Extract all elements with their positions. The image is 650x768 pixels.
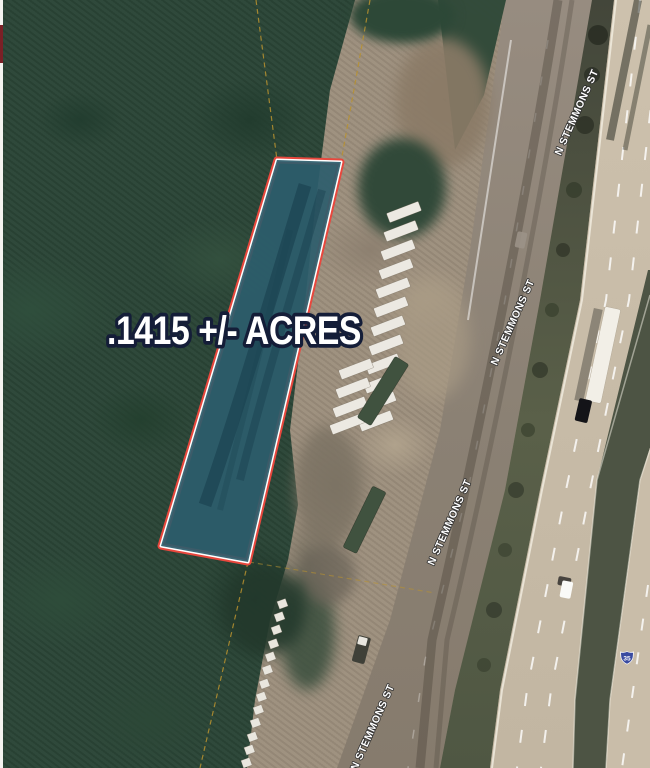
road-wear-streaks	[420, 0, 572, 768]
parcel-boundary	[161, 160, 341, 562]
map-overlay: N STEMMONS ST N STEMMONS ST N STEMMONS S…	[0, 0, 650, 768]
vehicles	[352, 231, 621, 664]
shield-route-number: 35	[623, 656, 631, 663]
street-label: N STEMMONS ST	[349, 682, 398, 768]
trailer-row-bottom	[241, 599, 288, 768]
aerial-map: N STEMMONS ST N STEMMONS ST N STEMMONS S…	[0, 0, 650, 768]
semi-truck-cab	[574, 398, 592, 423]
left-edge-border	[0, 0, 3, 768]
acreage-label: .1415 +/- ACRES	[107, 309, 361, 353]
left-edge-artifact	[0, 25, 3, 63]
interstate-shield-icon: 35	[621, 652, 634, 665]
